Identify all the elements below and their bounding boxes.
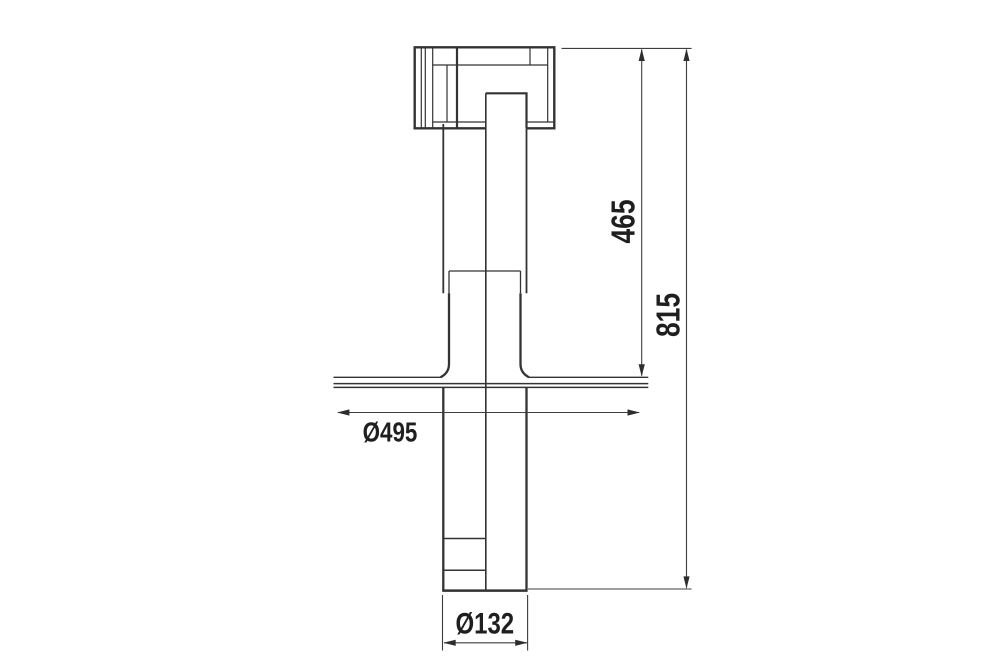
dim-495-arrow-right [628, 409, 640, 415]
dim-465: 465 [606, 49, 645, 377]
dim-132-arrow-left [443, 640, 455, 646]
inner-tube-wall-left [441, 293, 450, 377]
dim-815: 815 [651, 49, 690, 589]
lower-tube-clamp-lines [443, 539, 486, 571]
dim-465-arrow-down [639, 364, 645, 376]
fan-housing-interior-lines [421, 47, 554, 128]
dim-495-label: Ø495 [363, 417, 418, 448]
lower-tube-walls [443, 387, 526, 590]
motor-column-stub [486, 93, 527, 128]
inner-tube-wall-right [521, 293, 530, 377]
fan-housing-outline [415, 47, 555, 128]
dim-flange-diameter: Ø495 [337, 409, 640, 448]
inner-tube-top [449, 271, 521, 293]
dim-132-arrow-right [515, 640, 527, 646]
dim-495-arrow-left [337, 409, 349, 415]
dim-465-arrow-up [639, 49, 645, 61]
dim-815-arrow-down [683, 576, 689, 588]
dim-815-label: 815 [651, 293, 687, 337]
technical-drawing: 465 815 Ø495 Ø132 [0, 0, 1000, 658]
dim-tube-diameter: Ø132 [443, 595, 528, 651]
dim-815-arrow-up [683, 49, 689, 61]
dim-132-label: Ø132 [455, 606, 514, 640]
upper-tube [443, 124, 526, 293]
flange-bottom-lines [334, 384, 649, 388]
dim-465-label: 465 [606, 199, 642, 243]
drawing-canvas: 465 815 Ø495 Ø132 [0, 0, 1000, 658]
